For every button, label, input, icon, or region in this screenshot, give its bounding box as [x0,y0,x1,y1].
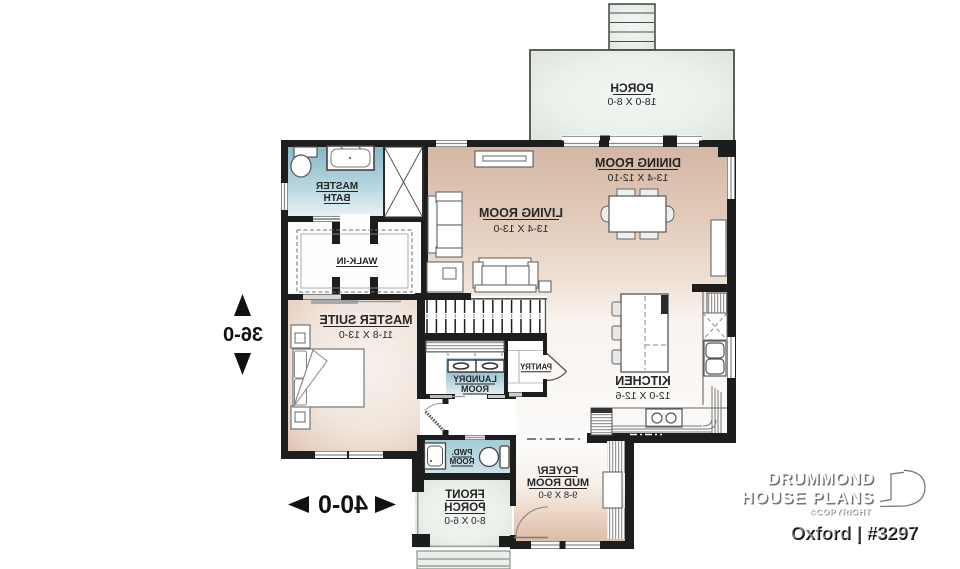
svg-text:PORCH: PORCH [610,81,653,95]
svg-text:MUD ROOM: MUD ROOM [527,477,589,489]
svg-text:DINING ROOM: DINING ROOM [595,156,681,170]
svg-text:MASTER SUITE: MASTER SUITE [319,313,412,327]
svg-text:PANTRY: PANTRY [519,363,552,372]
svg-text:40-0: 40-0 [318,491,368,519]
svg-text:MASTER: MASTER [315,181,358,192]
svg-text:PWD.: PWD. [452,448,473,457]
svg-text:DRUMMOND: DRUMMOND [767,469,874,488]
svg-text:12-0 X 12-6: 12-0 X 12-6 [615,390,670,402]
svg-text:FOYER/: FOYER/ [538,465,579,477]
svg-text:36-0: 36-0 [223,324,263,346]
svg-text:©COPYRIGHT: ©COPYRIGHT [809,507,871,517]
svg-text:PORCH: PORCH [444,502,486,514]
svg-text:KITCHEN: KITCHEN [615,374,671,388]
svg-text:ROOM: ROOM [461,384,489,394]
svg-text:18-0 X 8-0: 18-0 X 8-0 [607,96,656,108]
svg-text:HOUSE PLANS: HOUSE PLANS [741,488,874,507]
svg-text:13-4 X 12-10: 13-4 X 12-10 [607,172,668,184]
svg-text:13-4 X 13-0: 13-4 X 13-0 [493,223,548,235]
svg-text:11-8 X 13-0: 11-8 X 13-0 [339,329,393,341]
svg-text:LAUNDRY: LAUNDRY [453,374,497,384]
svg-text:8-0 X 6-0: 8-0 X 6-0 [444,516,486,527]
svg-text:BATH: BATH [323,193,350,204]
svg-text:ROOM: ROOM [449,457,474,466]
svg-text:9-8 X 9-0: 9-8 X 9-0 [538,490,577,501]
svg-text:FRONT: FRONT [445,489,485,501]
svg-text:LIVING ROOM: LIVING ROOM [479,206,563,220]
svg-text:WALK-IN: WALK-IN [337,256,378,267]
svg-text:Oxford | #3297: Oxford | #3297 [790,522,918,543]
